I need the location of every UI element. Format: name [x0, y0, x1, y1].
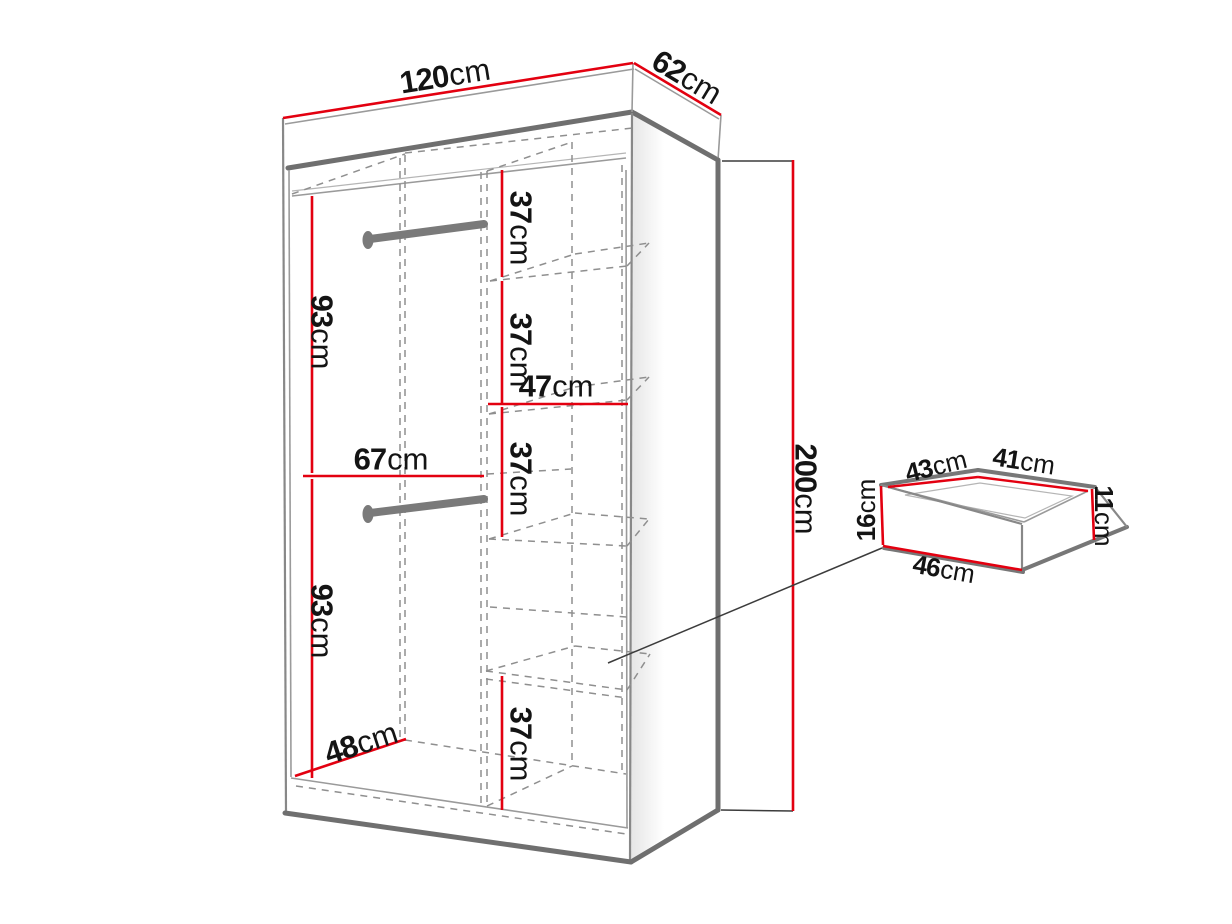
dim-label-shelf-gap-1: 37cm — [506, 191, 537, 266]
dim-label-overall-height: 200cm — [791, 443, 822, 534]
dim-label-hanging-width: 67cm — [354, 444, 429, 475]
dim-label-hanging-top: 93cm — [307, 295, 338, 370]
dim-label-hanging-bottom: 93cm — [307, 584, 338, 659]
shelf-3 — [489, 513, 649, 546]
hanging-rail-bottom — [363, 499, 485, 523]
interior-hidden-edges — [292, 128, 633, 834]
dim-label-shelf-gap-4: 37cm — [506, 707, 537, 782]
dim-label-drawer-front-height: 16cm — [853, 479, 879, 542]
wardrobe-dimension-diagram: 120cm 62cm 200cm 93cm 93cm 67cm 48cm 37c… — [0, 0, 1232, 924]
dim-label-drawer-inner-height: 11cm — [1091, 485, 1117, 546]
hanging-rail-top — [363, 224, 485, 249]
dim-label-shelf-width: 47cm — [519, 371, 594, 402]
dim-label-shelf-gap-3: 37cm — [506, 442, 537, 517]
drawer-slot-divider — [490, 607, 627, 617]
shelf-4 — [486, 646, 650, 698]
side-panel-shading — [631, 114, 664, 860]
